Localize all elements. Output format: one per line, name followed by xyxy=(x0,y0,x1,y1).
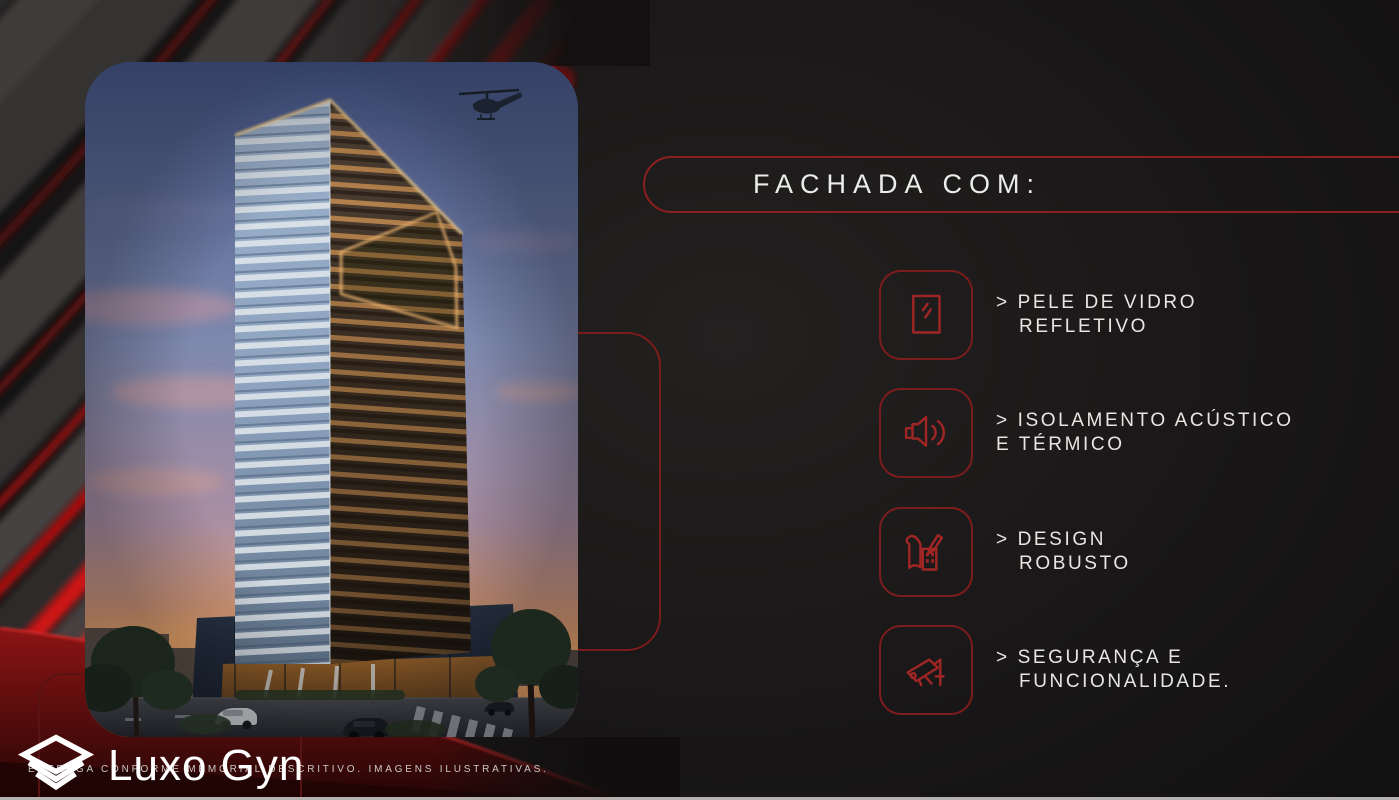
blueprint-design-icon xyxy=(890,517,962,587)
cctv-camera-icon xyxy=(890,635,962,705)
feature-item: > ISOLAMENTO ACÚSTICO E TÉRMICO xyxy=(879,388,1294,478)
slide: FACHADA COM: > PELE DE VIDRO REFLETIVO >… xyxy=(0,0,1399,800)
building-render-photo xyxy=(85,62,578,737)
feature-item: > PELE DE VIDRO REFLETIVO xyxy=(879,270,1197,360)
feature-line2: REFLETIVO xyxy=(996,315,1197,339)
feature-line1: > PELE DE VIDRO xyxy=(996,291,1197,315)
feature-icon-box xyxy=(879,270,973,360)
layered-diamond-logo-icon xyxy=(10,732,102,798)
feature-item: > DESIGN ROBUSTO xyxy=(879,507,1131,597)
feature-line2: E TÉRMICO xyxy=(996,433,1294,457)
page-title: FACHADA COM: xyxy=(645,169,1041,200)
feature-item: > SEGURANÇA E FUNCIONALIDADE. xyxy=(879,625,1231,715)
feature-line2: ROBUSTO xyxy=(996,552,1131,576)
section-title-pill: FACHADA COM: xyxy=(643,156,1399,213)
feature-icon-box xyxy=(879,507,973,597)
brand-name: Luxo Gyn xyxy=(108,741,304,791)
feature-icon-box xyxy=(879,388,973,478)
feature-line1: > ISOLAMENTO ACÚSTICO xyxy=(996,409,1294,433)
background-fade xyxy=(290,0,650,66)
glass-window-icon xyxy=(890,280,962,350)
feature-line1: > DESIGN xyxy=(996,528,1131,552)
feature-icon-box xyxy=(879,625,973,715)
brand-logo: Luxo Gyn xyxy=(10,732,304,798)
feature-line1: > SEGURANÇA E xyxy=(996,646,1231,670)
speaker-sound-icon xyxy=(890,398,962,468)
feature-line2: FUNCIONALIDADE. xyxy=(996,670,1231,694)
